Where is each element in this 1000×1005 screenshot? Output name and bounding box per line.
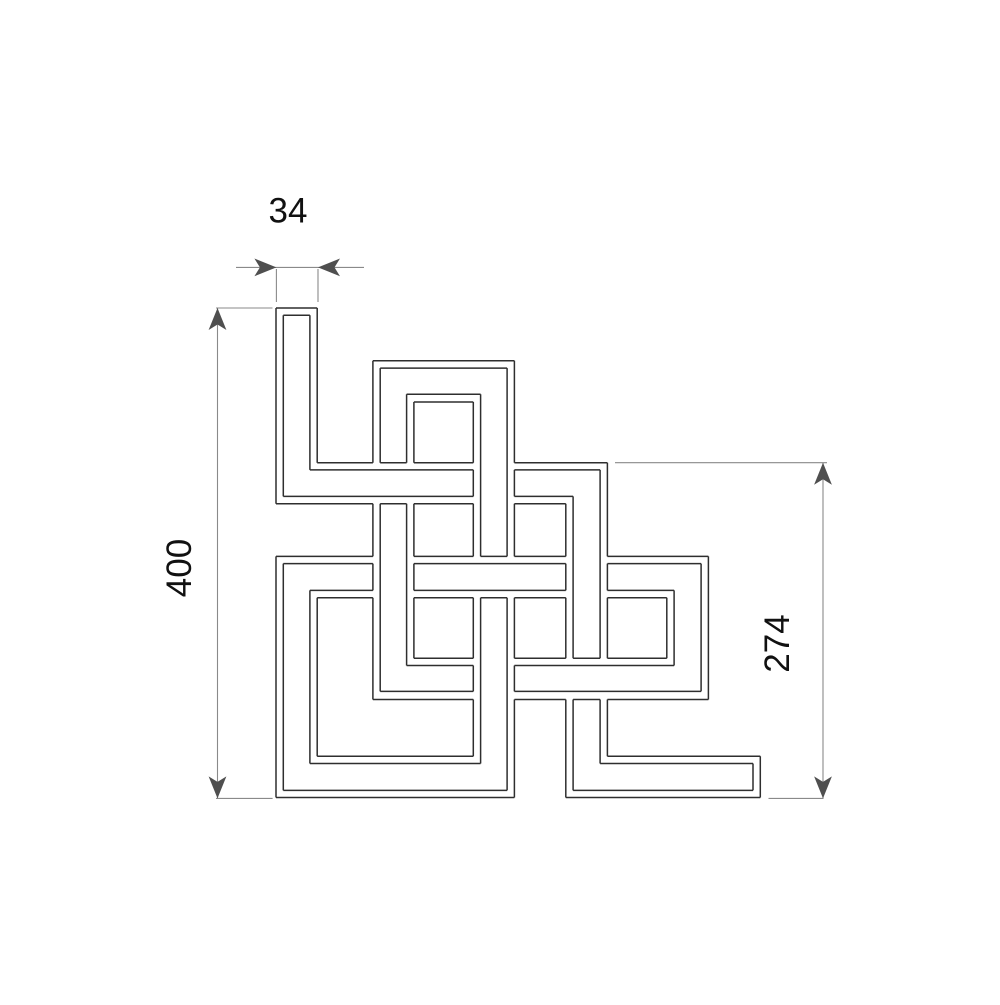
svg-text:274: 274 [758,614,797,672]
svg-text:34: 34 [269,192,308,231]
svg-text:400: 400 [160,539,199,597]
